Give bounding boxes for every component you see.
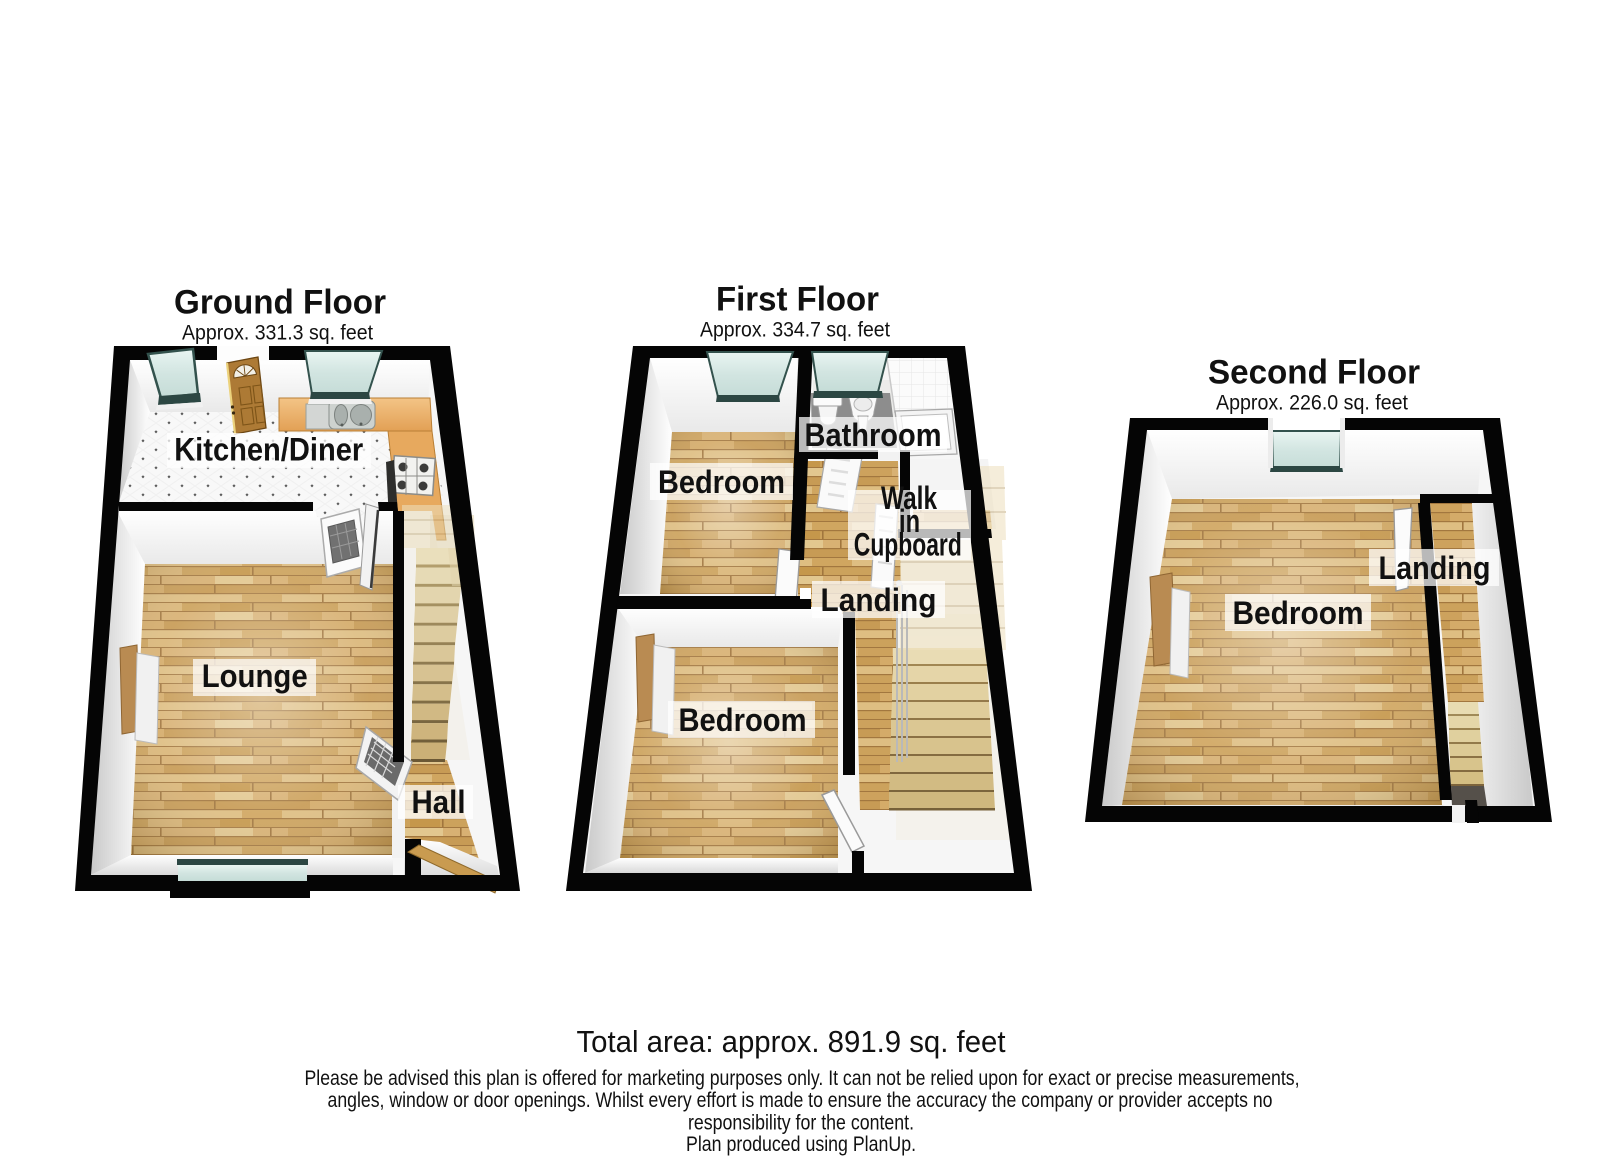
- svg-text:Landing: Landing: [821, 582, 937, 618]
- svg-text:angles, window or door opening: angles, window or door openings. Whilst …: [328, 1089, 1273, 1112]
- svg-text:Ground Floor: Ground Floor: [174, 284, 386, 322]
- svg-text:Approx. 226.0 sq. feet: Approx. 226.0 sq. feet: [1216, 391, 1408, 415]
- svg-text:Landing: Landing: [1379, 550, 1491, 586]
- svg-text:Please be advised this plan is: Please be advised this plan is offered f…: [305, 1067, 1300, 1090]
- svg-text:Lounge: Lounge: [202, 658, 308, 694]
- svg-text:Approx. 331.3 sq. feet: Approx. 331.3 sq. feet: [182, 321, 373, 345]
- svg-text:Cupboard: Cupboard: [854, 526, 962, 562]
- svg-text:responsibility for the content: responsibility for the content.: [688, 1112, 914, 1135]
- svg-text:Approx. 334.7 sq. feet: Approx. 334.7 sq. feet: [700, 318, 890, 342]
- svg-text:Bathroom: Bathroom: [805, 417, 942, 453]
- svg-text:Kitchen/Diner: Kitchen/Diner: [174, 432, 363, 468]
- svg-text:First Floor: First Floor: [716, 281, 879, 319]
- svg-text:Hall: Hall: [412, 784, 466, 820]
- svg-text:Bedroom: Bedroom: [1233, 595, 1364, 631]
- svg-text:Second Floor: Second Floor: [1208, 354, 1420, 392]
- svg-text:Bedroom: Bedroom: [658, 464, 785, 500]
- svg-text:Total area: approx. 891.9 sq.: Total area: approx. 891.9 sq. feet: [577, 1024, 1006, 1059]
- svg-text:Bedroom: Bedroom: [679, 702, 807, 738]
- svg-text:Plan produced using PlanUp.: Plan produced using PlanUp.: [686, 1133, 916, 1156]
